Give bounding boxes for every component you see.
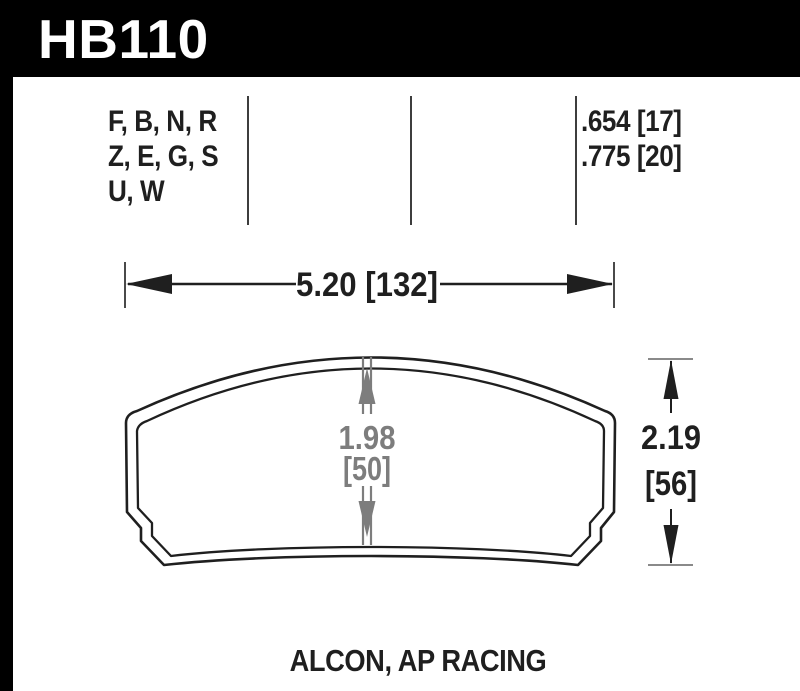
arrowhead-right-icon (567, 274, 613, 294)
arrowhead-up-icon (664, 360, 679, 399)
overall-width-label: 5.20 [132] (296, 266, 438, 304)
overall-height-inches-label: 2.19 (641, 419, 701, 457)
overall-width-dimension: 5.20 [132] (125, 262, 614, 308)
overall-height-mm-label: [56] (645, 465, 697, 503)
diagram-page: HB110 F, B, N, R Z, E, G, S U, W .654 [1… (0, 0, 800, 691)
brake-pad-dimension-drawing: 5.20 [132] 1.98 [50] 2.19 [56] (0, 0, 800, 691)
arrowhead-down-icon (664, 525, 679, 564)
caliper-applications: ALCON, AP RACING (82, 643, 754, 679)
overall-height-dimension: 2.19 [56] (641, 359, 701, 565)
arrowhead-left-icon (126, 274, 172, 294)
center-height-mm-label: [50] (343, 450, 391, 487)
